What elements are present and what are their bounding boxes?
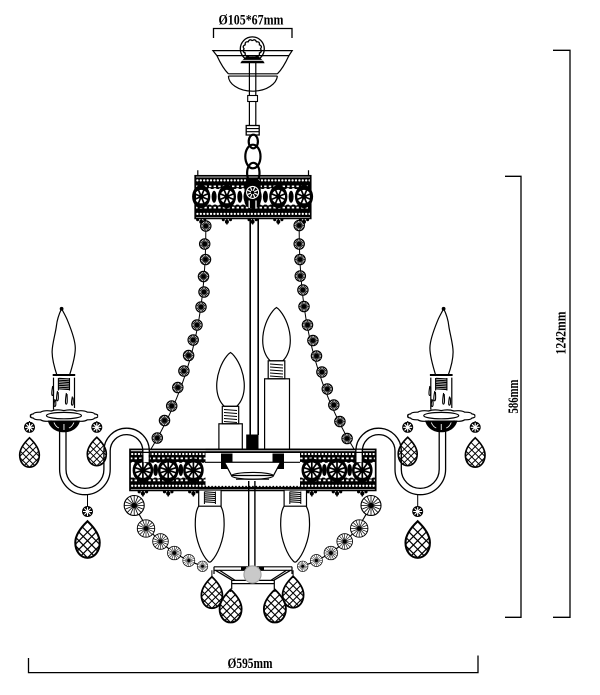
- svg-text:586mm: 586mm: [506, 380, 522, 414]
- svg-text:1242mm: 1242mm: [554, 312, 570, 355]
- svg-text:Ø595mm: Ø595mm: [228, 656, 273, 672]
- svg-text:Ø105*67mm: Ø105*67mm: [219, 13, 284, 29]
